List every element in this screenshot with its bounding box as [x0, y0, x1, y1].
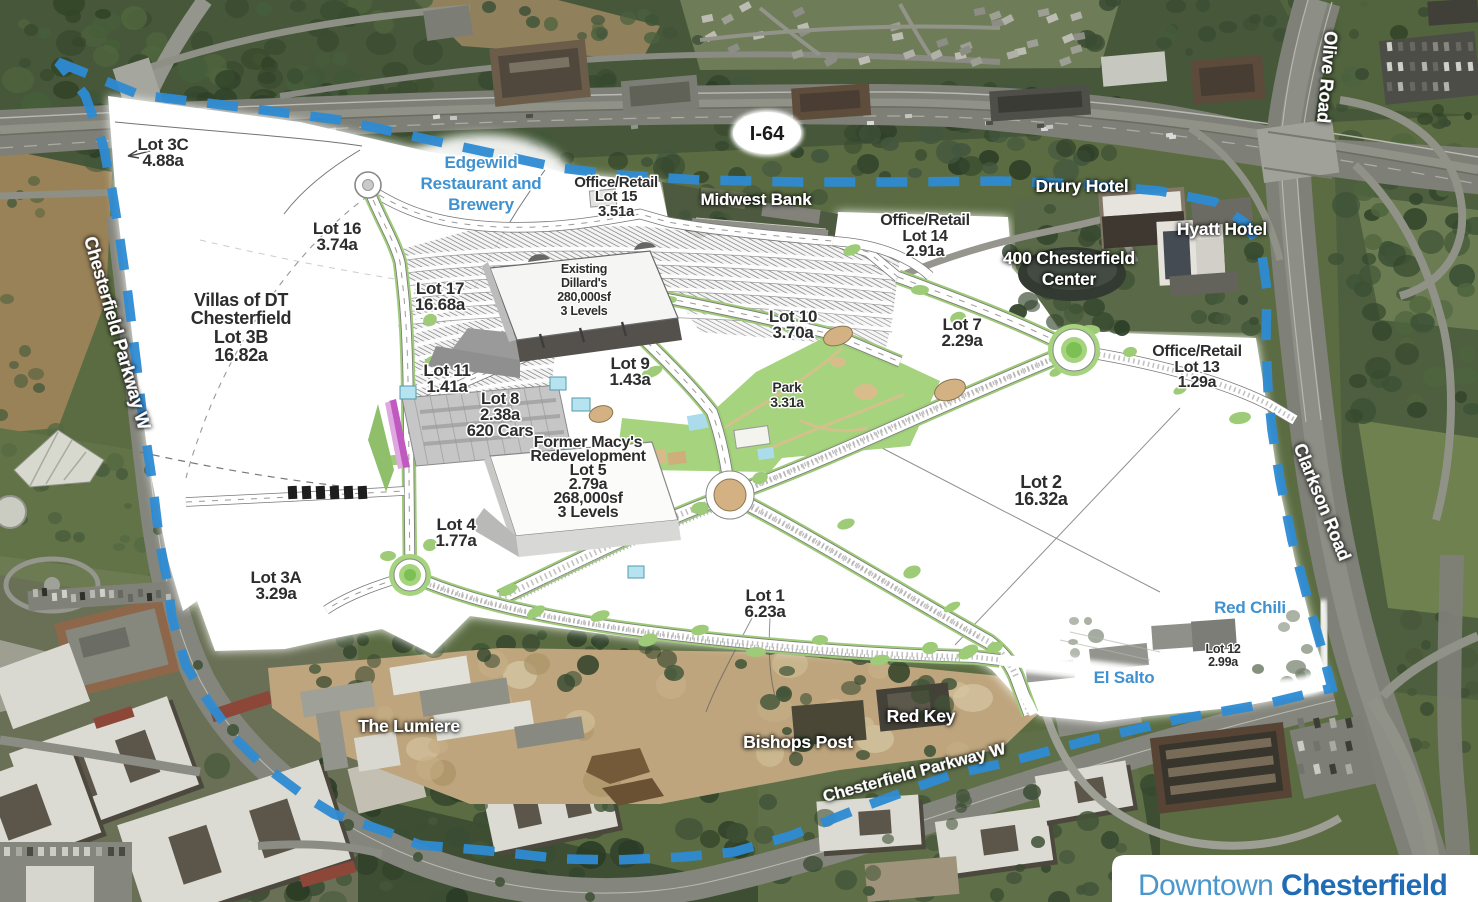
svg-text:Office/Retail: Office/Retail: [880, 212, 969, 229]
svg-text:1.43a: 1.43a: [609, 370, 651, 389]
svg-text:1.77a: 1.77a: [435, 531, 477, 550]
svg-text:Park: Park: [772, 379, 802, 395]
svg-text:Office/Retail: Office/Retail: [1152, 343, 1241, 360]
svg-text:16.32a: 16.32a: [1014, 489, 1069, 509]
svg-text:The Lumiere: The Lumiere: [358, 716, 460, 736]
svg-text:3 Levels: 3 Levels: [561, 304, 608, 318]
svg-text:16.68a: 16.68a: [415, 295, 466, 314]
svg-text:Edgewild: Edgewild: [444, 153, 517, 172]
svg-text:Downtown Chesterfield: Downtown Chesterfield: [1138, 869, 1447, 902]
svg-text:400 Chesterfield: 400 Chesterfield: [1003, 248, 1135, 268]
svg-text:Chesterfield: Chesterfield: [191, 308, 291, 328]
svg-text:3.29a: 3.29a: [255, 584, 297, 603]
svg-text:2.29a: 2.29a: [941, 331, 983, 350]
svg-text:3.51a: 3.51a: [598, 203, 635, 220]
svg-text:6.23a: 6.23a: [744, 602, 786, 621]
svg-text:620 Cars: 620 Cars: [467, 422, 534, 440]
svg-text:Center: Center: [1042, 269, 1097, 289]
svg-text:Hyatt Hotel: Hyatt Hotel: [1177, 219, 1267, 239]
svg-text:3.70a: 3.70a: [772, 323, 814, 342]
svg-text:Brewery: Brewery: [448, 195, 514, 214]
svg-text:Existing: Existing: [561, 262, 607, 276]
svg-text:Dillard's: Dillard's: [561, 276, 607, 290]
svg-text:3.31a: 3.31a: [770, 394, 804, 410]
svg-text:280,000sf: 280,000sf: [557, 290, 612, 304]
svg-text:Midwest Bank: Midwest Bank: [701, 190, 813, 209]
svg-text:2.99a: 2.99a: [1208, 655, 1239, 669]
svg-text:3.74a: 3.74a: [316, 235, 358, 254]
svg-text:Red Key: Red Key: [887, 706, 956, 726]
svg-text:Villas of DT: Villas of DT: [194, 290, 288, 310]
svg-text:4.88a: 4.88a: [142, 151, 184, 170]
svg-text:El Salto: El Salto: [1094, 668, 1155, 687]
svg-text:3 Levels: 3 Levels: [558, 504, 619, 521]
svg-text:Restaurant and: Restaurant and: [421, 174, 542, 193]
svg-text:Lot 12: Lot 12: [1205, 642, 1240, 656]
svg-text:16.82a: 16.82a: [214, 345, 269, 365]
svg-text:1.29a: 1.29a: [1178, 374, 1217, 391]
svg-text:Bishops Post: Bishops Post: [743, 732, 853, 752]
svg-text:I-64: I-64: [750, 123, 785, 145]
svg-text:Lot 3B: Lot 3B: [214, 327, 268, 347]
svg-text:1.41a: 1.41a: [426, 377, 468, 396]
svg-text:Red Chili: Red Chili: [1214, 598, 1286, 617]
svg-text:2.91a: 2.91a: [906, 243, 945, 260]
svg-text:Drury Hotel: Drury Hotel: [1035, 176, 1128, 196]
